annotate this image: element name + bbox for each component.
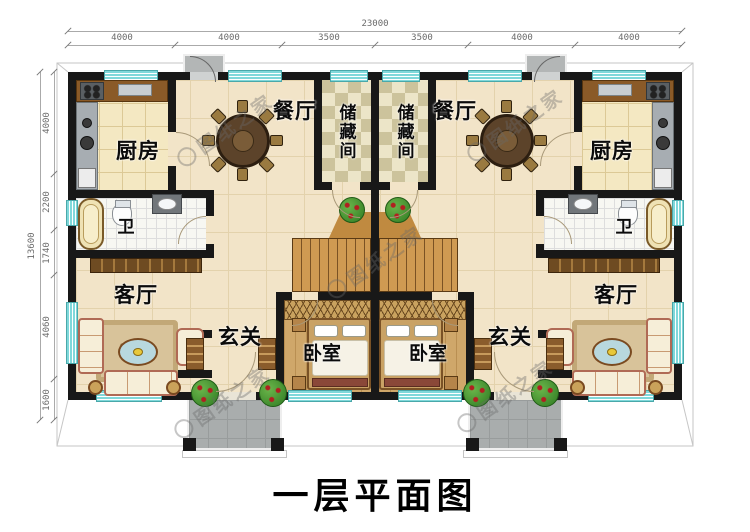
- label-bedroom-left: 卧室: [303, 339, 341, 366]
- pillow-icon: [314, 325, 338, 337]
- pillow-icon: [386, 325, 410, 337]
- bath-sink-icon: [568, 194, 598, 214]
- dim-left-seg: 2200: [42, 191, 52, 213]
- dining-chair: [270, 135, 283, 146]
- wall-storage-left-bottom-a: [314, 182, 332, 190]
- porch-column: [271, 438, 284, 451]
- wall-bath-right-top: [536, 190, 682, 198]
- dim-left-seg: 1600: [42, 389, 52, 411]
- bathtub-icon: [646, 198, 672, 250]
- wall-bath-left-side-a: [206, 190, 214, 216]
- wall-bedroom-left-top-a: [284, 292, 292, 300]
- wall-kitchen-right-a: [574, 72, 582, 132]
- wall-bath-left-bottom: [68, 250, 214, 258]
- dim-top-seg: 4000: [511, 33, 533, 43]
- label-dining-right: 餐厅: [433, 95, 477, 125]
- dim-top-seg: 3500: [318, 33, 340, 43]
- side-table-icon: [570, 380, 585, 395]
- dim-line-left-segments: [54, 72, 55, 420]
- label-bedroom-right: 卧室: [409, 339, 447, 366]
- dining-chair: [501, 168, 512, 181]
- bed-runner: [312, 378, 368, 387]
- label-storage-left: 储藏间: [334, 104, 359, 161]
- pot-icon: [82, 118, 92, 128]
- side-table-icon: [88, 380, 103, 395]
- wall-bath-right-bottom: [536, 250, 682, 258]
- dim-top-total: 23000: [361, 19, 388, 29]
- dim-top-seg: 4000: [618, 33, 640, 43]
- window-storage-left: [330, 70, 368, 82]
- wall-storage-left-side: [314, 72, 322, 188]
- dim-top-seg: 4000: [218, 33, 240, 43]
- dining-chair: [237, 168, 248, 181]
- label-foyer-right: 玄关: [488, 321, 532, 351]
- porch-column: [466, 438, 479, 451]
- coffee-table-left: [118, 338, 158, 366]
- window-bedroom-right: [398, 390, 462, 402]
- window-bath-left: [66, 200, 78, 226]
- wall-foyer-left-stub-b: [178, 370, 212, 378]
- dim-left-seg: 4060: [42, 316, 52, 338]
- window-bath-right: [672, 200, 684, 226]
- kitchen-sink-icon: [598, 84, 632, 96]
- side-table-icon: [648, 380, 663, 395]
- stove-icon: [80, 82, 104, 100]
- dim-line-top-total: [68, 31, 682, 32]
- pot-icon: [80, 136, 94, 150]
- dim-left-seg: 4000: [42, 112, 52, 134]
- label-kitchen-left: 厨房: [116, 135, 160, 165]
- floor-plan-canvas: 厨房 厨房 餐厅 餐厅 储藏间 储藏间 卫 卫 客厅 客厅 玄关 玄关 卧室 卧…: [0, 0, 750, 532]
- dining-chair: [534, 135, 547, 146]
- fridge-icon: [654, 168, 672, 188]
- dim-left-seg: 1740: [42, 242, 52, 264]
- bathtub-icon: [78, 198, 104, 250]
- wall-storage-right-bottom-a: [418, 182, 436, 190]
- stove-icon: [646, 82, 670, 100]
- wall-bath-left-top: [68, 190, 214, 198]
- pot-icon: [658, 118, 668, 128]
- nightstand-icon: [292, 376, 306, 390]
- pillow-icon: [342, 325, 366, 337]
- dim-top-seg: 3500: [411, 33, 433, 43]
- wall-kitchen-left-a: [168, 72, 176, 132]
- label-storage-right: 储藏间: [392, 104, 417, 161]
- wall-storage-right-bottom-b: [371, 182, 390, 190]
- entry-step-right: [463, 450, 568, 458]
- dim-line-left-total: [40, 72, 41, 420]
- window-dining-left: [228, 70, 282, 82]
- console-cabinet-right: [548, 258, 660, 273]
- porch-column: [554, 438, 567, 451]
- label-kitchen-right: 厨房: [590, 135, 634, 165]
- window-storage-right: [382, 70, 420, 82]
- shoe-cabinet-icon: [186, 338, 204, 370]
- pot-icon: [656, 136, 670, 150]
- label-bath-right: 卫: [616, 213, 633, 238]
- window-living-right: [672, 302, 684, 364]
- wall-bedroom-right-top-a: [458, 292, 466, 300]
- kitchen-sink-icon: [118, 84, 152, 96]
- side-table-icon: [166, 380, 181, 395]
- label-dining-left: 餐厅: [273, 95, 317, 125]
- label-bath-left: 卫: [118, 213, 135, 238]
- bath-sink-icon: [152, 194, 182, 214]
- window-bedroom-left: [288, 390, 352, 402]
- page-title: 一层平面图: [272, 467, 477, 519]
- wall-bedroom-right-top-b: [379, 292, 432, 300]
- pillow-icon: [414, 325, 438, 337]
- window-living-left: [66, 302, 78, 364]
- fridge-icon: [78, 168, 96, 188]
- bed-runner: [384, 378, 440, 387]
- window-dining-right: [468, 70, 522, 82]
- entry-step-left: [182, 450, 287, 458]
- coffee-table-right: [592, 338, 632, 366]
- label-living-right: 客厅: [594, 279, 638, 309]
- label-living-left: 客厅: [114, 279, 158, 309]
- sofa-side-right: [646, 318, 672, 374]
- wall-storage-right-side: [428, 72, 436, 188]
- nightstand-icon: [444, 376, 458, 390]
- sofa-side-left: [78, 318, 104, 374]
- console-cabinet-left: [90, 258, 202, 273]
- dim-top-seg: 4000: [111, 33, 133, 43]
- wall-center-party: [371, 72, 379, 400]
- wall-bath-right-side-a: [536, 190, 544, 216]
- label-foyer-left: 玄关: [218, 321, 262, 351]
- dim-left-total: 13600: [27, 232, 37, 259]
